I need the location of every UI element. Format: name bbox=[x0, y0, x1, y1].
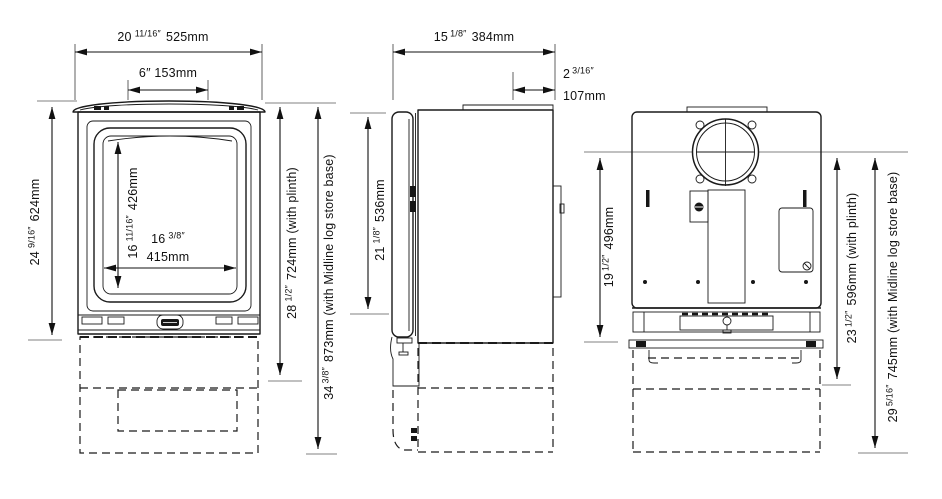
side-door-pin-block bbox=[397, 338, 412, 343]
diagram-canvas: 2011/16″525mm 6″ 153mm 249/16″624mm 1611… bbox=[0, 0, 942, 499]
front-glass-height-dim: 1611/16″426mm bbox=[118, 142, 140, 288]
front-glass-height-label: 1611/16″426mm bbox=[125, 167, 141, 258]
front-glass-width-mm-label: 415mm bbox=[147, 250, 190, 264]
side-rear-offset-in-label: 23/16″ bbox=[563, 66, 594, 82]
side-door-height-label: 211/8″536mm bbox=[372, 179, 388, 261]
front-door bbox=[87, 121, 251, 311]
rear-flue-height-plinth-dim: 231/2″596mm (with plinth) bbox=[822, 158, 859, 385]
front-height-logstore-dim: 343/8″873mm (with Midline log store base… bbox=[306, 107, 337, 454]
side-rear-bracket bbox=[553, 186, 561, 297]
side-view: 151/8″384mm 23/16″ 107mm 211/8″536mm bbox=[350, 29, 606, 453]
side-depth-label: 151/8″384mm bbox=[434, 29, 515, 45]
side-door-latch-lower bbox=[410, 201, 416, 212]
rear-handle-knob bbox=[723, 317, 731, 325]
front-overall-width-label: 2011/16″525mm bbox=[117, 29, 208, 45]
front-body-height-label: 249/16″624mm bbox=[27, 179, 43, 266]
side-rear-offset-mm-label: 107mm bbox=[563, 89, 606, 103]
rear-slot-right bbox=[803, 190, 807, 207]
side-rear-offset-dim: 23/16″ 107mm bbox=[513, 66, 606, 104]
front-window-glass bbox=[103, 136, 237, 294]
rear-flue-height-dim: 191/2″496mm bbox=[584, 158, 618, 342]
dimension-diagram: 2011/16″525mm 6″ 153mm 249/16″624mm 1611… bbox=[0, 0, 942, 499]
side-top-lip bbox=[463, 105, 553, 110]
front-top-plate-marks bbox=[94, 106, 244, 110]
front-plinth-logstore-outline bbox=[80, 337, 258, 453]
side-door-height-dim: 211/8″536mm bbox=[350, 113, 389, 314]
side-door bbox=[392, 112, 413, 337]
rear-fixing-dots bbox=[643, 280, 808, 284]
front-view: 2011/16″525mm 6″ 153mm 249/16″624mm 1611… bbox=[27, 29, 338, 455]
side-body bbox=[418, 110, 553, 343]
rear-ashpan-cover bbox=[680, 316, 773, 330]
rear-flue-height-logstore-dim: 295/16″745mm (with Midline log store bas… bbox=[858, 158, 908, 453]
front-bottom-strip bbox=[78, 315, 260, 330]
front-glass-width-in-label: 163/8″ bbox=[151, 231, 185, 247]
side-door-latch-upper bbox=[410, 186, 416, 197]
rear-flue-height-logstore-label: 295/16″745mm (with Midline log store bas… bbox=[885, 172, 901, 423]
front-top-width-label: 6″ 153mm bbox=[139, 66, 197, 80]
rear-view: 191/2″496mm 231/2″596mm (with plinth) 29… bbox=[584, 107, 908, 453]
front-height-plinth-label: 281/2″724mm (with plinth) bbox=[284, 167, 300, 319]
front-top-width-dim: 6″ 153mm bbox=[128, 66, 208, 100]
rear-slot-left bbox=[646, 190, 650, 207]
rear-bottom-band bbox=[629, 308, 823, 348]
side-front-leg bbox=[391, 337, 419, 386]
front-window-top-arc bbox=[108, 136, 232, 141]
front-window-frame bbox=[94, 128, 246, 302]
side-depth-dim: 151/8″384mm bbox=[393, 29, 555, 101]
rear-top-lip bbox=[687, 107, 767, 112]
front-overall-width-dim: 2011/16″525mm bbox=[75, 29, 262, 101]
side-plinth-logstore-outline bbox=[393, 343, 553, 452]
rear-flue-height-plinth-label: 231/2″596mm (with plinth) bbox=[844, 193, 860, 344]
rear-base-bar bbox=[629, 340, 823, 348]
side-door-pin-foot bbox=[399, 352, 408, 355]
front-height-logstore-label: 343/8″873mm (with Midline log store base… bbox=[321, 154, 337, 400]
front-body-height-dim: 249/16″624mm bbox=[27, 101, 78, 340]
rear-flue-height-label: 191/2″496mm bbox=[601, 207, 617, 288]
rear-centre-channel bbox=[708, 190, 745, 303]
rear-plinth-logstore-outline bbox=[633, 350, 820, 452]
